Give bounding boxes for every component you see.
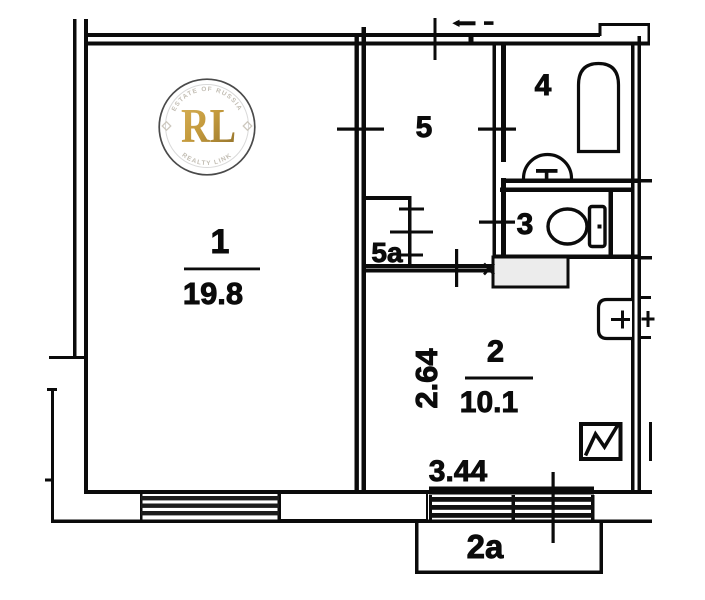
- svg-text:2a: 2a: [467, 528, 504, 565]
- svg-text:2: 2: [487, 334, 504, 369]
- svg-text:2.64: 2.64: [409, 348, 444, 409]
- svg-text:10.1: 10.1: [460, 386, 518, 419]
- svg-text:4: 4: [535, 69, 552, 102]
- svg-text:19.8: 19.8: [183, 276, 243, 311]
- svg-text:5: 5: [416, 111, 433, 144]
- svg-text:1: 1: [211, 223, 230, 261]
- svg-text:5a: 5a: [371, 237, 403, 268]
- svg-text:3: 3: [517, 208, 534, 241]
- svg-text:3.44: 3.44: [429, 455, 488, 488]
- svg-text:RL: RL: [181, 98, 236, 153]
